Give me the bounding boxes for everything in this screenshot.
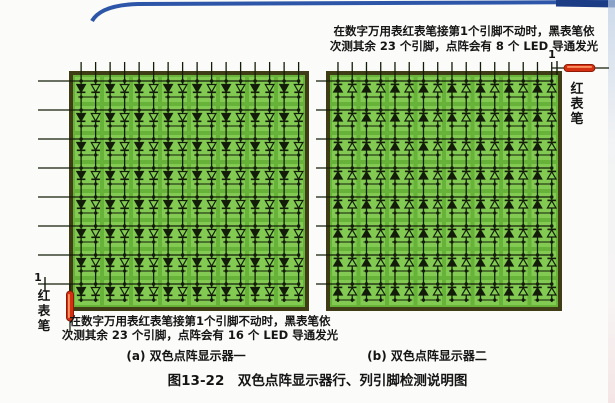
junction-dot bbox=[239, 240, 242, 243]
junction-dot bbox=[521, 195, 525, 199]
junction-dot bbox=[109, 182, 112, 185]
junction-dot bbox=[350, 166, 354, 170]
junction-dot bbox=[137, 282, 141, 286]
junction-dot bbox=[166, 108, 170, 112]
junction-dot bbox=[167, 95, 170, 98]
junction-dot bbox=[422, 253, 426, 257]
junction-dot bbox=[268, 124, 271, 127]
junction-dot bbox=[536, 79, 540, 83]
junction-dot bbox=[536, 282, 540, 286]
junction-dot bbox=[450, 124, 453, 127]
junction-dot bbox=[195, 137, 199, 141]
junction-dot bbox=[351, 298, 354, 301]
junction-dot bbox=[422, 195, 426, 199]
junction-dot bbox=[351, 153, 354, 156]
junction-dot bbox=[507, 137, 511, 141]
junction-dot bbox=[268, 182, 271, 185]
junction-dot bbox=[123, 269, 126, 272]
junction-dot bbox=[268, 269, 271, 272]
junction-dot bbox=[450, 182, 453, 185]
junction-dot bbox=[181, 269, 184, 272]
junction-dot bbox=[493, 253, 497, 257]
junction-dot bbox=[239, 298, 242, 301]
junction-dot bbox=[479, 124, 482, 127]
junction-dot bbox=[393, 253, 397, 257]
junction-dot bbox=[450, 224, 454, 228]
junction-dot bbox=[123, 298, 126, 301]
junction-dot bbox=[379, 153, 382, 156]
junction-dot bbox=[493, 108, 497, 112]
junction-dot bbox=[379, 240, 382, 243]
junction-dot bbox=[80, 124, 83, 127]
junction-dot bbox=[152, 108, 156, 112]
junction-dot bbox=[138, 153, 141, 156]
junction-dot bbox=[254, 240, 257, 243]
junction-dot bbox=[521, 253, 525, 257]
junction-dot bbox=[210, 124, 213, 127]
junction-dot bbox=[393, 211, 396, 214]
junction-dot bbox=[109, 269, 112, 272]
junction-dot bbox=[108, 108, 112, 112]
probe-label: 表 bbox=[569, 96, 584, 112]
junction-dot bbox=[479, 108, 483, 112]
junction-dot bbox=[152, 195, 156, 199]
junction-dot bbox=[422, 269, 425, 272]
junction-dot bbox=[94, 166, 98, 170]
junction-dot bbox=[379, 211, 382, 214]
probe-label: 红 bbox=[570, 81, 583, 97]
junction-dot bbox=[254, 211, 257, 214]
junction-dot bbox=[350, 224, 354, 228]
junction-dot bbox=[152, 124, 155, 127]
junction-dot bbox=[336, 137, 340, 141]
junction-dot bbox=[239, 282, 243, 286]
junction-dot bbox=[123, 124, 126, 127]
junction-dot bbox=[283, 211, 286, 214]
junction-dot bbox=[79, 79, 83, 83]
junction-dot bbox=[239, 124, 242, 127]
junction-dot bbox=[196, 298, 199, 301]
junction-dot bbox=[379, 224, 383, 228]
junction-dot bbox=[350, 282, 354, 286]
junction-dot bbox=[152, 224, 156, 228]
figure-caption: 图13-22 双色点阵显示器行、列引脚检测说明图 bbox=[60, 369, 575, 389]
junction-dot bbox=[224, 253, 228, 257]
junction-dot bbox=[166, 79, 170, 83]
junction-dot bbox=[422, 282, 426, 286]
junction-dot bbox=[422, 224, 426, 228]
junction-dot bbox=[80, 211, 83, 214]
junction-dot bbox=[195, 282, 199, 286]
junction-dot bbox=[351, 269, 354, 272]
junction-dot bbox=[253, 108, 257, 112]
junction-dot bbox=[379, 137, 383, 141]
junction-dot bbox=[436, 79, 440, 83]
junction-dot bbox=[137, 108, 141, 112]
junction-dot bbox=[152, 166, 156, 170]
junction-dot bbox=[379, 95, 382, 98]
junction-dot bbox=[550, 182, 553, 185]
junction-dot bbox=[336, 124, 339, 127]
probe-highlight bbox=[567, 66, 592, 68]
junction-dot bbox=[365, 253, 369, 257]
junction-dot bbox=[479, 211, 482, 214]
junction-dot bbox=[407, 108, 411, 112]
junction-dot bbox=[550, 253, 554, 257]
junction-dot bbox=[464, 282, 468, 286]
junction-dot bbox=[379, 253, 383, 257]
junction-dot bbox=[181, 195, 185, 199]
junction-dot bbox=[379, 282, 383, 286]
junction-dot bbox=[422, 79, 426, 83]
junction-dot bbox=[336, 211, 339, 214]
junction-dot bbox=[268, 137, 272, 141]
junction-dot bbox=[138, 95, 141, 98]
junction-dot bbox=[507, 211, 510, 214]
junction-dot bbox=[109, 211, 112, 214]
junction-dot bbox=[479, 166, 483, 170]
junction-dot bbox=[450, 253, 454, 257]
junction-dot bbox=[536, 153, 539, 156]
junction-dot bbox=[493, 195, 497, 199]
junction-dot bbox=[521, 166, 525, 170]
junction-dot bbox=[436, 253, 440, 257]
junction-dot bbox=[521, 137, 525, 141]
junction-dot bbox=[521, 108, 525, 112]
junction-dot bbox=[282, 282, 286, 286]
junction-dot bbox=[181, 166, 185, 170]
junction-dot bbox=[450, 79, 454, 83]
junction-dot bbox=[152, 95, 155, 98]
junction-dot bbox=[450, 240, 453, 243]
junction-dot bbox=[408, 124, 411, 127]
junction-dot bbox=[181, 79, 185, 83]
junction-dot bbox=[336, 153, 339, 156]
junction-dot bbox=[464, 108, 468, 112]
junction-dot bbox=[536, 240, 539, 243]
junction-dot bbox=[550, 95, 553, 98]
junction-dot bbox=[465, 298, 468, 301]
junction-dot bbox=[407, 282, 411, 286]
dot-matrix-display-2: 1红表笔 bbox=[300, 40, 615, 320]
junction-dot bbox=[123, 153, 126, 156]
junction-dot bbox=[152, 269, 155, 272]
junction-dot bbox=[436, 282, 440, 286]
junction-dot bbox=[254, 124, 257, 127]
junction-dot bbox=[224, 108, 228, 112]
junction-dot bbox=[436, 195, 440, 199]
junction-dot bbox=[393, 166, 397, 170]
junction-dot bbox=[393, 182, 396, 185]
page-edge-line bbox=[556, 3, 615, 4]
junction-dot bbox=[464, 137, 468, 141]
junction-dot bbox=[123, 282, 127, 286]
junction-dot bbox=[422, 166, 426, 170]
junction-dot bbox=[407, 253, 411, 257]
junction-dot bbox=[268, 153, 271, 156]
junction-dot bbox=[522, 182, 525, 185]
junction-dot bbox=[393, 137, 397, 141]
junction-dot bbox=[225, 211, 228, 214]
junction-dot bbox=[225, 182, 228, 185]
junction-dot bbox=[137, 224, 141, 228]
junction-dot bbox=[536, 269, 539, 272]
junction-dot bbox=[550, 124, 553, 127]
junction-dot bbox=[166, 282, 170, 286]
pin-1-label: 1 bbox=[548, 48, 556, 61]
junction-dot bbox=[365, 79, 369, 83]
junction-dot bbox=[239, 195, 243, 199]
junction-dot bbox=[336, 240, 339, 243]
junction-dot bbox=[152, 253, 156, 257]
annotation-line-2: 次测其余 23 个引脚，点阵会有 16 个 LED 导通发光 bbox=[52, 328, 348, 342]
junction-dot bbox=[152, 153, 155, 156]
junction-dot bbox=[465, 269, 468, 272]
junction-dot bbox=[283, 153, 286, 156]
junction-dot bbox=[436, 211, 439, 214]
junction-dot bbox=[210, 108, 214, 112]
junction-dot bbox=[493, 182, 496, 185]
junction-dot bbox=[436, 95, 439, 98]
junction-dot bbox=[479, 253, 483, 257]
junction-dot bbox=[109, 124, 112, 127]
junction-dot bbox=[422, 182, 425, 185]
junction-dot bbox=[436, 124, 439, 127]
caption-matrix-2: (b) 双色点阵显示器二 bbox=[327, 347, 527, 364]
junction-dot bbox=[210, 182, 213, 185]
junction-dot bbox=[239, 95, 242, 98]
junction-dot bbox=[450, 298, 453, 301]
junction-dot bbox=[536, 298, 539, 301]
junction-dot bbox=[464, 166, 468, 170]
junction-dot bbox=[210, 137, 214, 141]
junction-dot bbox=[166, 224, 170, 228]
junction-dot bbox=[479, 282, 483, 286]
junction-dot bbox=[493, 282, 497, 286]
junction-dot bbox=[80, 240, 83, 243]
junction-dot bbox=[493, 153, 496, 156]
junction-dot bbox=[152, 211, 155, 214]
junction-dot bbox=[123, 224, 127, 228]
junction-dot bbox=[393, 108, 397, 112]
junction-dot bbox=[507, 282, 511, 286]
junction-dot bbox=[479, 298, 482, 301]
junction-dot bbox=[268, 79, 272, 83]
junction-dot bbox=[336, 108, 340, 112]
junction-dot bbox=[550, 108, 554, 112]
junction-dot bbox=[365, 124, 368, 127]
junction-dot bbox=[550, 298, 553, 301]
junction-dot bbox=[181, 182, 184, 185]
junction-dot bbox=[181, 224, 185, 228]
junction-dot bbox=[407, 137, 411, 141]
junction-dot bbox=[336, 166, 340, 170]
junction-dot bbox=[507, 240, 510, 243]
junction-dot bbox=[239, 166, 243, 170]
junction-dot bbox=[450, 269, 453, 272]
junction-dot bbox=[522, 240, 525, 243]
junction-dot bbox=[225, 298, 228, 301]
junction-dot bbox=[181, 95, 184, 98]
junction-dot bbox=[350, 253, 354, 257]
junction-dot bbox=[225, 269, 228, 272]
junction-dot bbox=[210, 240, 213, 243]
junction-dot bbox=[365, 95, 368, 98]
junction-dot bbox=[123, 253, 127, 257]
junction-dot bbox=[268, 166, 272, 170]
junction-dot bbox=[393, 153, 396, 156]
junction-dot bbox=[268, 224, 272, 228]
junction-dot bbox=[94, 240, 97, 243]
junction-dot bbox=[365, 240, 368, 243]
junction-dot bbox=[422, 211, 425, 214]
junction-dot bbox=[536, 108, 540, 112]
junction-dot bbox=[450, 153, 453, 156]
junction-dot bbox=[393, 124, 396, 127]
junction-dot bbox=[268, 211, 271, 214]
junction-dot bbox=[123, 211, 126, 214]
junction-dot bbox=[422, 137, 426, 141]
junction-dot bbox=[196, 269, 199, 272]
junction-dot bbox=[493, 211, 496, 214]
junction-dot bbox=[239, 253, 243, 257]
junction-dot bbox=[94, 95, 97, 98]
junction-dot bbox=[210, 253, 214, 257]
junction-dot bbox=[350, 108, 354, 112]
junction-dot bbox=[167, 153, 170, 156]
junction-dot bbox=[479, 182, 482, 185]
junction-dot bbox=[507, 79, 511, 83]
junction-dot bbox=[210, 153, 213, 156]
probe-label: 红 bbox=[38, 288, 51, 303]
junction-dot bbox=[282, 108, 286, 112]
junction-dot bbox=[479, 224, 483, 228]
junction-dot bbox=[536, 166, 540, 170]
junction-dot bbox=[507, 153, 510, 156]
junction-dot bbox=[268, 282, 272, 286]
junction-dot bbox=[536, 182, 539, 185]
junction-dot bbox=[166, 166, 170, 170]
junction-dot bbox=[450, 137, 454, 141]
junction-dot bbox=[166, 195, 170, 199]
junction-dot bbox=[436, 298, 439, 301]
junction-dot bbox=[408, 95, 411, 98]
junction-dot bbox=[210, 79, 214, 83]
junction-dot bbox=[181, 211, 184, 214]
junction-dot bbox=[550, 153, 553, 156]
junction-dot bbox=[181, 124, 184, 127]
junction-dot bbox=[479, 95, 482, 98]
junction-dot bbox=[94, 224, 98, 228]
junction-dot bbox=[152, 298, 155, 301]
junction-dot bbox=[167, 269, 170, 272]
junction-dot bbox=[507, 269, 510, 272]
junction-dot bbox=[181, 298, 184, 301]
junction-dot bbox=[493, 124, 496, 127]
junction-dot bbox=[393, 79, 397, 83]
junction-dot bbox=[167, 298, 170, 301]
junction-dot bbox=[436, 269, 439, 272]
junction-dot bbox=[224, 282, 228, 286]
junction-dot bbox=[465, 211, 468, 214]
junction-dot bbox=[365, 137, 369, 141]
junction-dot bbox=[167, 240, 170, 243]
junction-dot bbox=[550, 224, 554, 228]
junction-dot bbox=[224, 79, 228, 83]
junction-dot bbox=[379, 195, 383, 199]
page-curl-line bbox=[92, 2, 615, 21]
junction-dot bbox=[283, 95, 286, 98]
junction-dot bbox=[365, 153, 368, 156]
junction-dot bbox=[253, 224, 257, 228]
junction-dot bbox=[436, 137, 440, 141]
junction-dot bbox=[336, 182, 339, 185]
junction-dot bbox=[254, 182, 257, 185]
junction-dot bbox=[522, 211, 525, 214]
junction-dot bbox=[522, 95, 525, 98]
junction-dot bbox=[108, 79, 112, 83]
junction-dot bbox=[253, 166, 257, 170]
junction-dot bbox=[351, 124, 354, 127]
junction-dot bbox=[268, 298, 271, 301]
junction-dot bbox=[94, 137, 98, 141]
junction-dot bbox=[465, 124, 468, 127]
junction-dot bbox=[94, 124, 97, 127]
junction-dot bbox=[254, 298, 257, 301]
junction-dot bbox=[550, 195, 554, 199]
junction-dot bbox=[138, 182, 141, 185]
junction-dot bbox=[450, 166, 454, 170]
junction-dot bbox=[536, 211, 539, 214]
junction-dot bbox=[283, 269, 286, 272]
junction-dot bbox=[365, 211, 368, 214]
junction-dot bbox=[196, 153, 199, 156]
junction-dot bbox=[350, 79, 354, 83]
junction-dot bbox=[210, 166, 214, 170]
junction-dot bbox=[268, 253, 272, 257]
junction-dot bbox=[123, 108, 127, 112]
junction-dot bbox=[465, 95, 468, 98]
junction-dot bbox=[522, 124, 525, 127]
junction-dot bbox=[479, 79, 483, 83]
junction-dot bbox=[365, 108, 369, 112]
junction-dot bbox=[408, 269, 411, 272]
junction-dot bbox=[408, 240, 411, 243]
junction-dot bbox=[465, 153, 468, 156]
junction-dot bbox=[224, 195, 228, 199]
junction-dot bbox=[109, 240, 112, 243]
junction-dot bbox=[507, 124, 510, 127]
junction-dot bbox=[350, 195, 354, 199]
junction-dot bbox=[167, 124, 170, 127]
junction-dot bbox=[351, 211, 354, 214]
junction-dot bbox=[393, 195, 397, 199]
junction-dot bbox=[550, 269, 553, 272]
junction-dot bbox=[408, 153, 411, 156]
junction-dot bbox=[123, 166, 127, 170]
junction-dot bbox=[181, 282, 185, 286]
junction-dot bbox=[79, 108, 83, 112]
junction-dot bbox=[79, 224, 83, 228]
junction-dot bbox=[493, 137, 497, 141]
junction-dot bbox=[479, 137, 483, 141]
junction-dot bbox=[210, 269, 213, 272]
junction-dot bbox=[123, 79, 127, 83]
junction-dot bbox=[521, 79, 525, 83]
junction-dot bbox=[253, 195, 257, 199]
junction-dot bbox=[282, 137, 286, 141]
junction-dot bbox=[379, 124, 382, 127]
